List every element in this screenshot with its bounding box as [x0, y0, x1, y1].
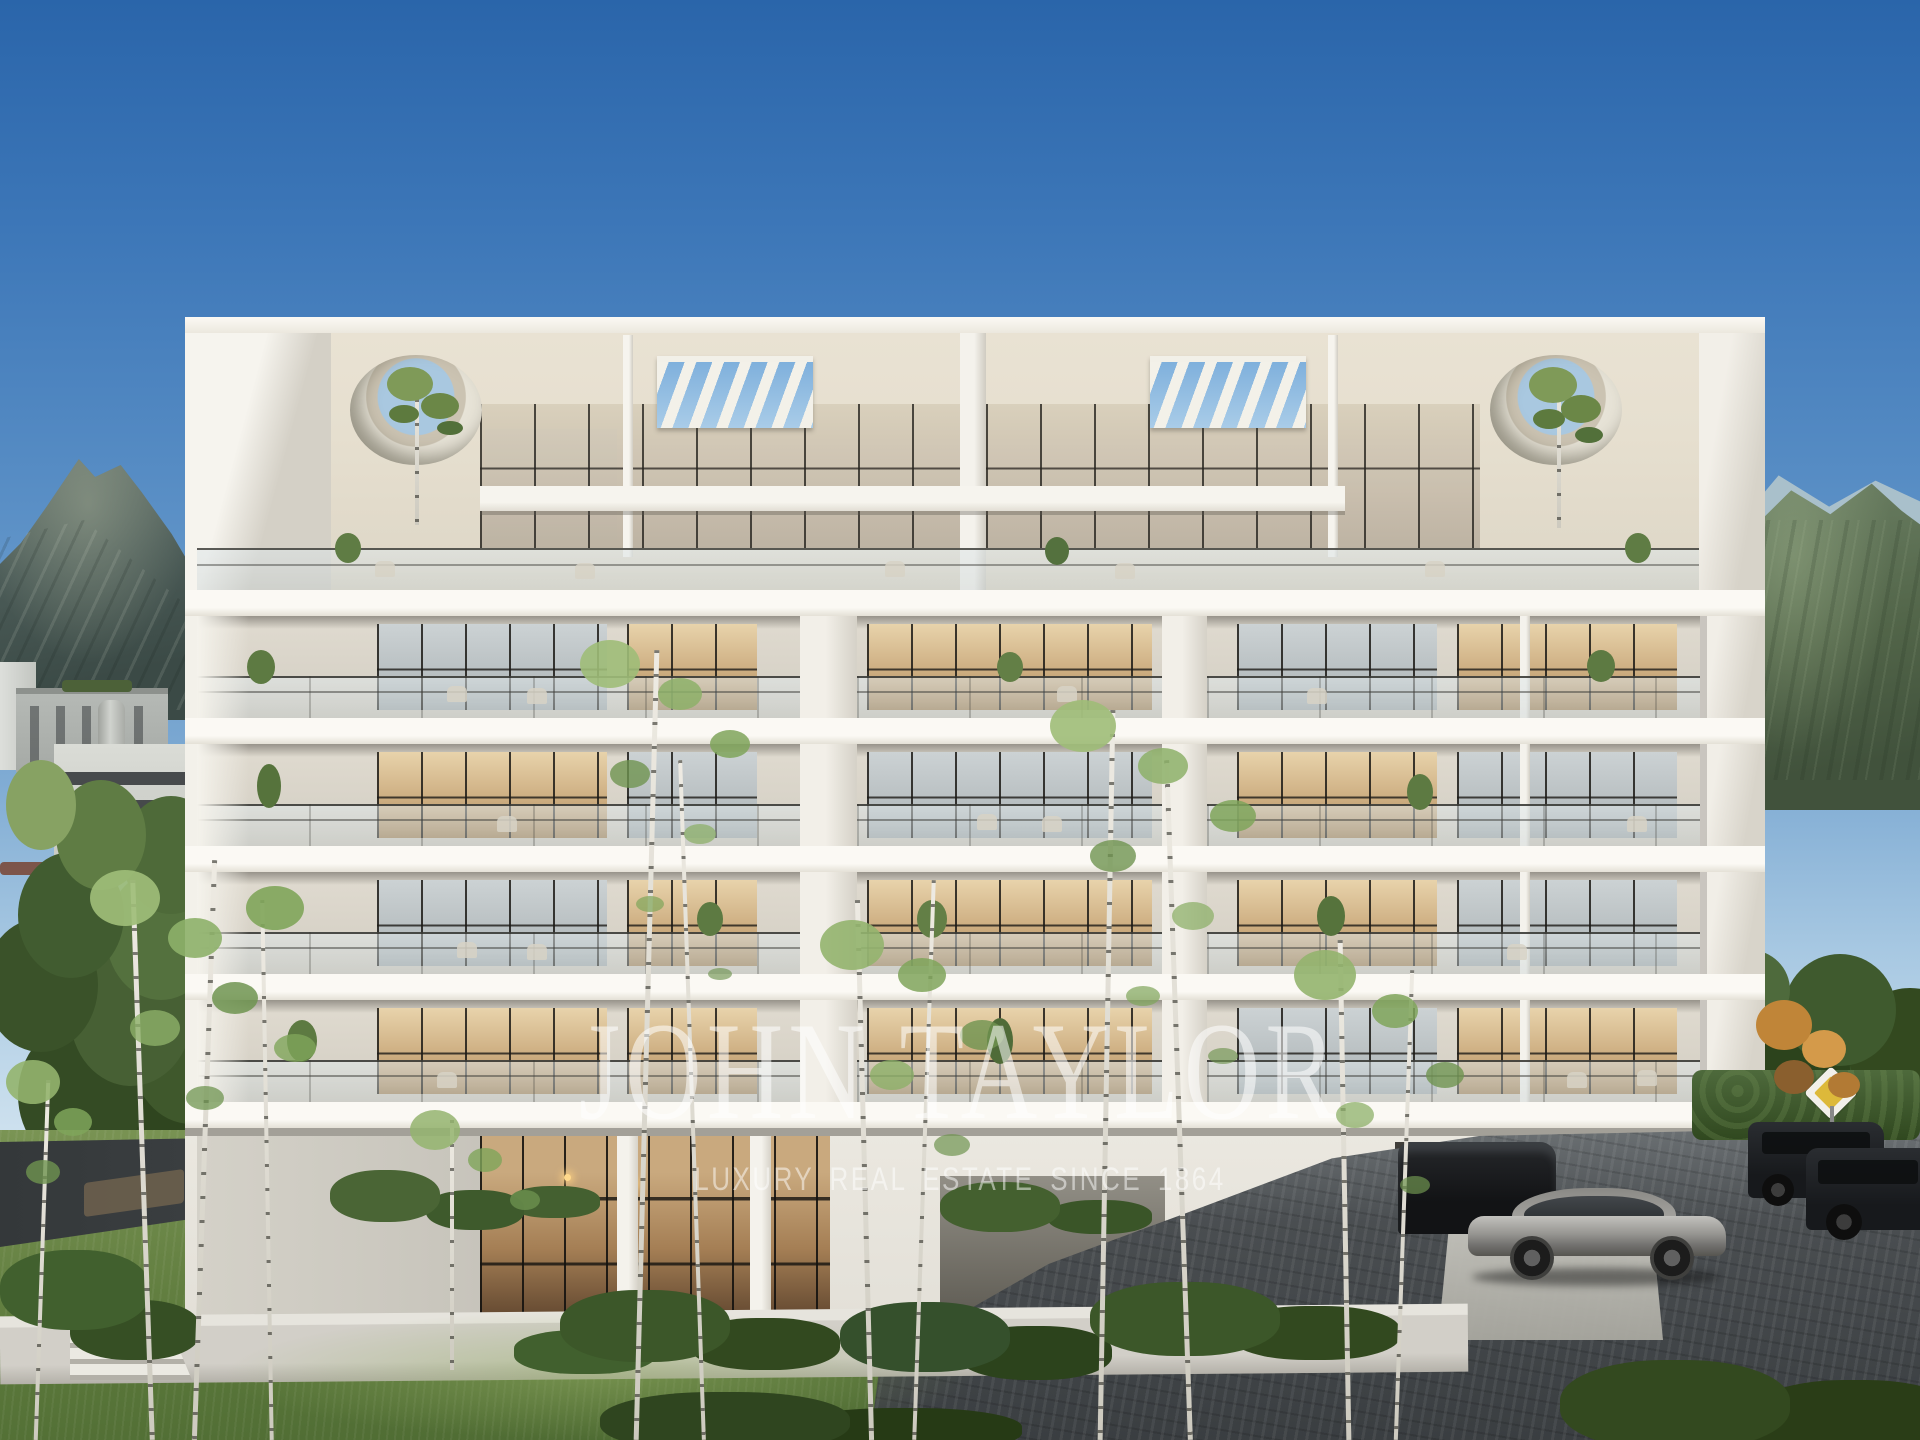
balcony-floor [185, 744, 1765, 846]
pier [185, 616, 197, 718]
glass-railing [1207, 676, 1700, 718]
balcony-floor [185, 616, 1765, 718]
background-trees [6, 760, 76, 850]
penthouse-balcony-slab [480, 486, 1345, 511]
foliage [820, 920, 884, 970]
floor-slab [185, 846, 1765, 872]
outdoor-chair [1307, 688, 1327, 704]
balcony-plant [1587, 650, 1615, 682]
outdoor-chair [1115, 563, 1135, 579]
side-wall [1700, 616, 1765, 718]
pier [185, 744, 197, 846]
foliage [1529, 367, 1577, 403]
outdoor-chair [375, 561, 395, 577]
bay-divider [800, 616, 857, 718]
car-wheel [1510, 1236, 1554, 1280]
outdoor-chair [575, 563, 595, 579]
roof-opening-tree [373, 367, 463, 455]
balcony-plant [997, 652, 1023, 682]
balcony-bay [1207, 744, 1700, 846]
foliage [90, 870, 160, 926]
foliage [387, 367, 433, 401]
watermark: JOHN TAYLOR LUXURY REAL ESTATE SINCE 186… [0, 1002, 1920, 1191]
watermark-tagline: LUXURY REAL ESTATE SINCE 1864 [0, 1160, 1920, 1199]
balcony-plant [1625, 533, 1651, 563]
roof-slab [185, 317, 1765, 333]
balcony-bay [1207, 616, 1700, 718]
roof-column [623, 335, 633, 557]
watermark-brand: JOHN TAYLOR [0, 1002, 1920, 1142]
balcony-plant [335, 533, 361, 563]
penthouse-railing [197, 548, 1699, 592]
balcony-plant [257, 764, 281, 808]
penthouse-right-wall [1699, 333, 1765, 590]
roof-garden [62, 680, 132, 692]
penthouse-level [185, 333, 1765, 590]
outdoor-chair [977, 814, 997, 830]
side-wall [1700, 872, 1765, 974]
foliage [1294, 950, 1356, 1000]
floor-slab [185, 590, 1765, 616]
outdoor-chair [1425, 561, 1445, 577]
pergola-slats [657, 356, 813, 428]
foliage [1050, 700, 1116, 752]
foliage [580, 640, 640, 688]
outdoor-chair [885, 561, 905, 577]
balcony-plant [1045, 537, 1069, 565]
outdoor-chair [497, 816, 517, 832]
right-mountain-texture [1740, 520, 1920, 780]
floor-slab [185, 718, 1765, 744]
pergola-slats [1150, 356, 1306, 428]
balcony-plant [1407, 774, 1433, 810]
car-wheel [1650, 1236, 1694, 1280]
outdoor-chair [1627, 816, 1647, 832]
parking-structure-windows [60, 772, 186, 856]
roof-column [1328, 335, 1338, 557]
outdoor-chair [1507, 944, 1527, 960]
outdoor-chair [457, 942, 477, 958]
bay-divider [800, 744, 857, 846]
bush [1560, 1360, 1790, 1440]
roof-opening-tree [1513, 367, 1603, 455]
balcony-plant [247, 650, 275, 684]
side-wall [1700, 744, 1765, 846]
silver-coupe [1468, 1186, 1726, 1290]
rendering-canvas: JOHN TAYLOR LUXURY REAL ESTATE SINCE 186… [0, 0, 1920, 1440]
outdoor-chair [447, 686, 467, 702]
